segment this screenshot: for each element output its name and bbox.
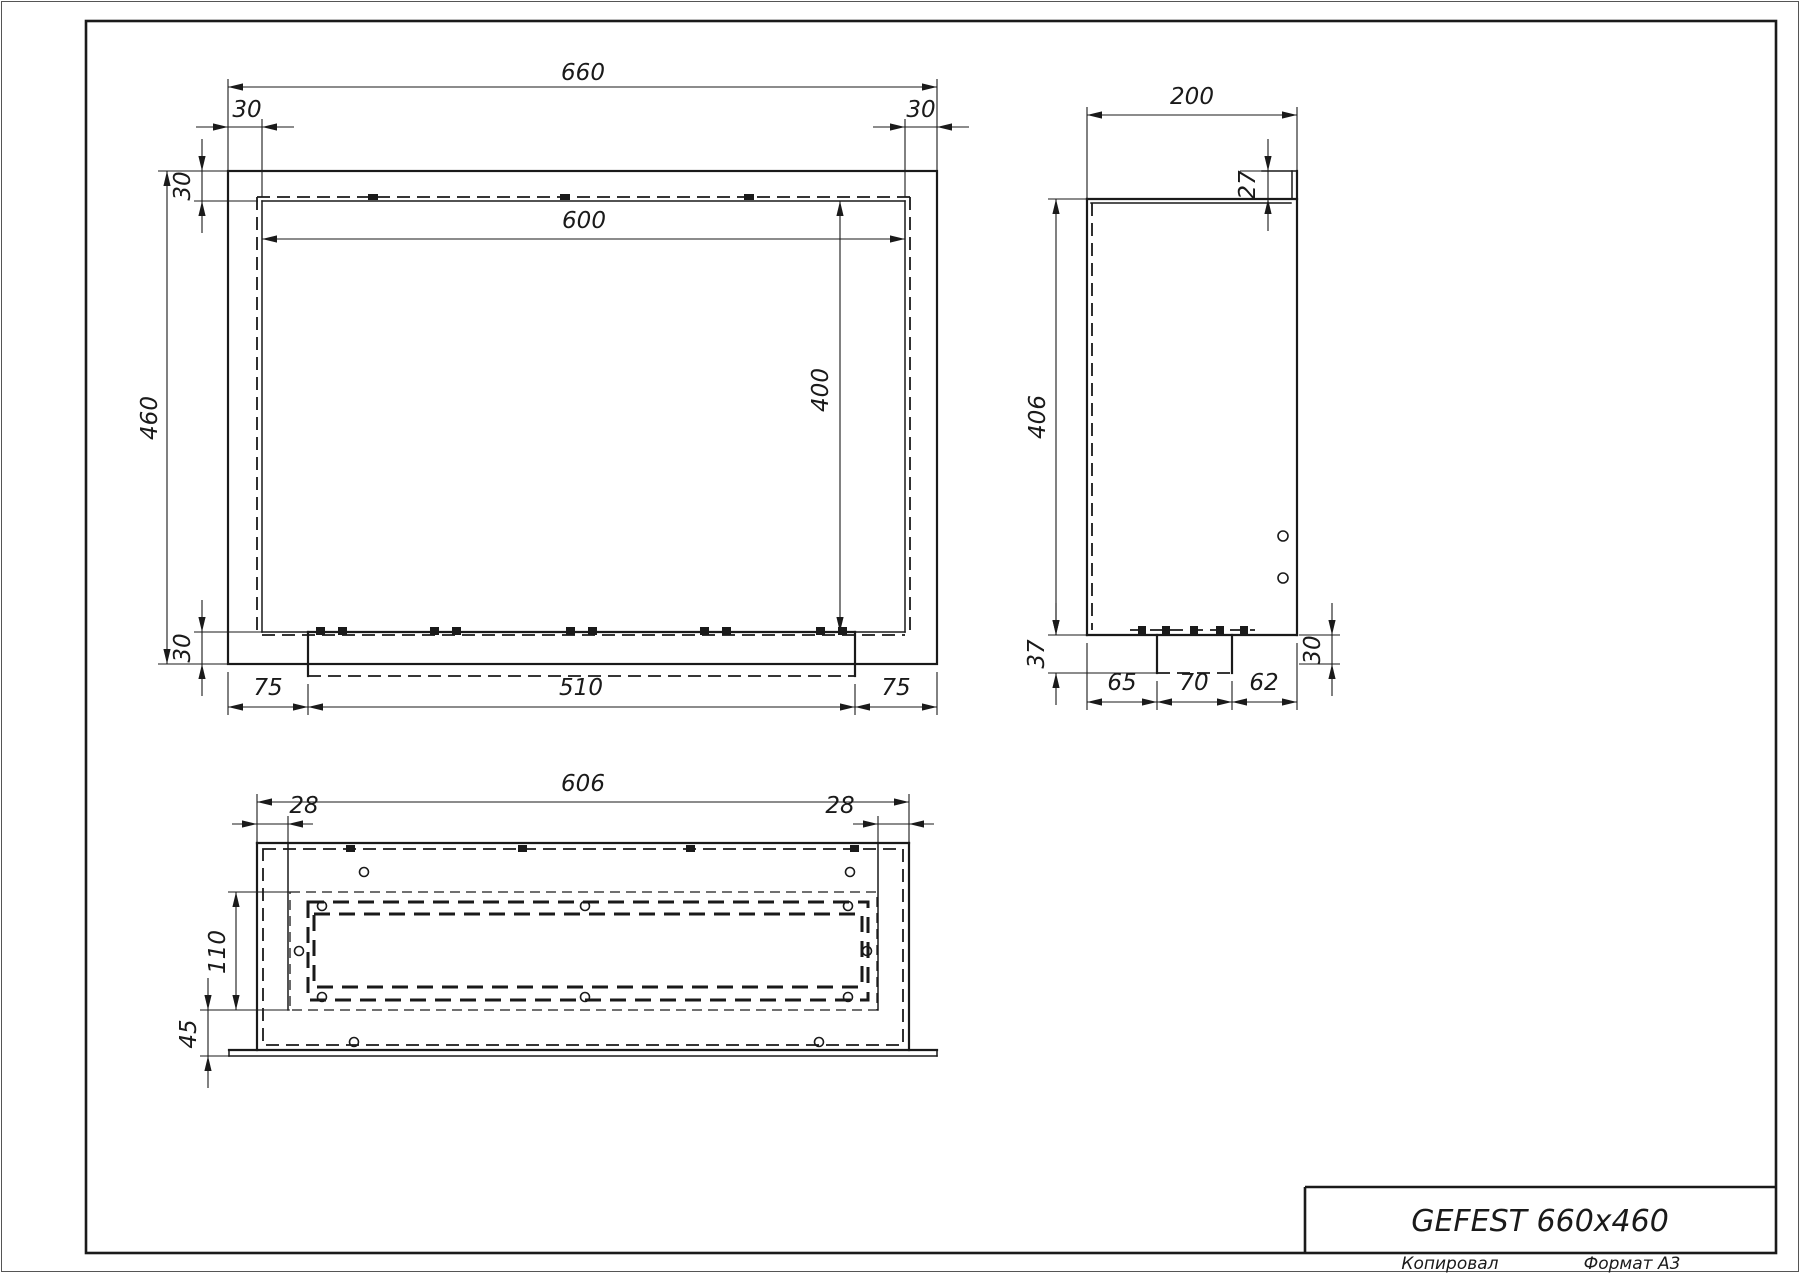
- dim-bottom-offset-left: 28: [232, 793, 319, 843]
- bottom-view-outline: [229, 843, 937, 1056]
- footer-copied-label: Копировал: [1401, 1254, 1498, 1273]
- dim-front-flange-top: 30: [158, 139, 258, 233]
- dim-front-opening-height: 400: [808, 201, 840, 632]
- front-view-mounting-tabs: [316, 194, 847, 635]
- dim-label-front-opening-height: 400: [808, 368, 834, 412]
- bottom-view-hidden-lines: [263, 849, 903, 1045]
- title-block-name: GEFEST 660x460: [1411, 1204, 1669, 1239]
- dim-label-bottom-offset-right: 28: [825, 793, 854, 819]
- title-block: GEFEST 660x460: [1305, 1187, 1776, 1253]
- dim-side-rear-drop: 30: [1299, 603, 1340, 696]
- front-view-burner-tray: [308, 632, 855, 676]
- dim-front-opening-width: 600: [262, 208, 905, 239]
- dim-label-front-flange-right: 30: [906, 97, 935, 123]
- dim-bottom-panel-width: 606: [257, 771, 909, 843]
- dim-label-front-flange-top: 30: [170, 171, 196, 200]
- dim-front-flange-right: 30: [873, 97, 969, 197]
- dim-label-side-tray-slot: 70: [1179, 670, 1208, 696]
- dim-front-flange-left: 30: [196, 97, 294, 197]
- drawing-frame: [86, 21, 1776, 1253]
- drawing-canvas: 660 30 30 30 600: [0, 0, 1800, 1273]
- dim-bottom-front-margin: 45: [176, 978, 229, 1088]
- dim-label-side-rear-segment: 62: [1249, 670, 1278, 696]
- dim-bottom-offset-right: 28: [825, 793, 934, 843]
- side-view-screw-holes: [1278, 531, 1288, 583]
- bottom-view: 606 28 28 110: [176, 771, 937, 1088]
- dim-label-front-opening-width: 600: [562, 208, 606, 234]
- bottom-view-holes: [295, 868, 872, 1047]
- dim-label-bottom-slot-depth: 110: [205, 930, 231, 974]
- dim-label-side-body-height: 406: [1025, 395, 1051, 439]
- dim-label-side-tray-depth: 37: [1024, 639, 1050, 669]
- dim-label-front-tray-margin-right: 75: [881, 675, 910, 701]
- dim-side-bottom-row: 65 70 62: [1087, 643, 1297, 710]
- dim-label-front-bottom-band: 30: [170, 633, 196, 662]
- dim-label-front-tray-margin-left: 75: [253, 675, 282, 701]
- front-view-outline: [228, 171, 937, 664]
- dim-bottom-slot-depth: 110: [200, 892, 290, 1010]
- dim-label-side-front-segment: 65: [1107, 670, 1136, 696]
- dim-label-front-flange-left: 30: [232, 97, 261, 123]
- front-view-hidden-lines: [257, 197, 910, 635]
- dim-front-bottom-band: 30: [170, 600, 262, 696]
- side-view: 200 27 406 37: [1024, 84, 1340, 710]
- bottom-view-mounting-tabs: [346, 845, 859, 852]
- dim-front-overall-height: 460: [137, 171, 228, 664]
- side-view-tray: [1157, 635, 1232, 673]
- dim-label-front-tray-width: 510: [559, 675, 603, 701]
- footer-format-label: Формат А3: [1584, 1254, 1681, 1273]
- dim-label-side-depth: 200: [1170, 84, 1214, 110]
- dim-side-depth: 200: [1087, 84, 1297, 199]
- dim-label-front-overall-width: 660: [561, 60, 605, 86]
- dim-label-bottom-front-margin: 45: [176, 1019, 202, 1048]
- burner-slot-inner: [314, 914, 862, 987]
- dim-label-bottom-offset-left: 28: [289, 793, 318, 819]
- dim-front-overall-width: 660: [228, 60, 937, 171]
- drawing-sheet: 660 30 30 30 600: [0, 0, 1800, 1273]
- side-view-hidden-lines: [1092, 203, 1255, 630]
- sheet-footer: Копировал Формат А3: [1401, 1254, 1680, 1273]
- dim-side-lip-height: 27: [1235, 139, 1268, 231]
- dim-front-tray-row: 75 510 75: [228, 672, 937, 715]
- dim-side-tray-depth: 37: [1024, 603, 1157, 705]
- dim-label-bottom-panel-width: 606: [561, 771, 605, 797]
- sheet-border: [2, 2, 1799, 1272]
- dim-label-side-lip-height: 27: [1235, 170, 1261, 200]
- burner-slot-outer: [308, 902, 868, 1000]
- dim-label-front-overall-height: 460: [137, 396, 163, 440]
- side-view-outline: [1087, 171, 1297, 635]
- dim-label-side-rear-drop: 30: [1300, 635, 1326, 664]
- dim-side-body-height: 406: [1025, 199, 1087, 635]
- front-view: 660 30 30 30 600: [137, 60, 969, 715]
